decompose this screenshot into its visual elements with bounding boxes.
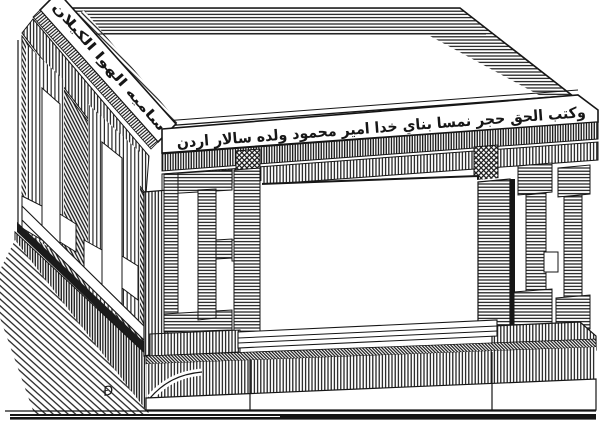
- opening-right-pier: [478, 179, 510, 333]
- opening-left-jamb: [234, 168, 260, 336]
- engraving-tomb-figure: ساميه الهوا الكيلان وكتب الحق حجر نمسا ب…: [0, 0, 600, 429]
- slab-back-hatch-band: [72, 8, 486, 34]
- left-pillar-cluster: [144, 168, 262, 356]
- tomb-engraving-canvas: ساميه الهوا الكيلان وكتب الحق حجر نمسا ب…: [0, 0, 600, 429]
- central-opening: [260, 176, 478, 333]
- right-baluster-tenon: [544, 252, 558, 272]
- left-cluster-base-block: [150, 330, 240, 356]
